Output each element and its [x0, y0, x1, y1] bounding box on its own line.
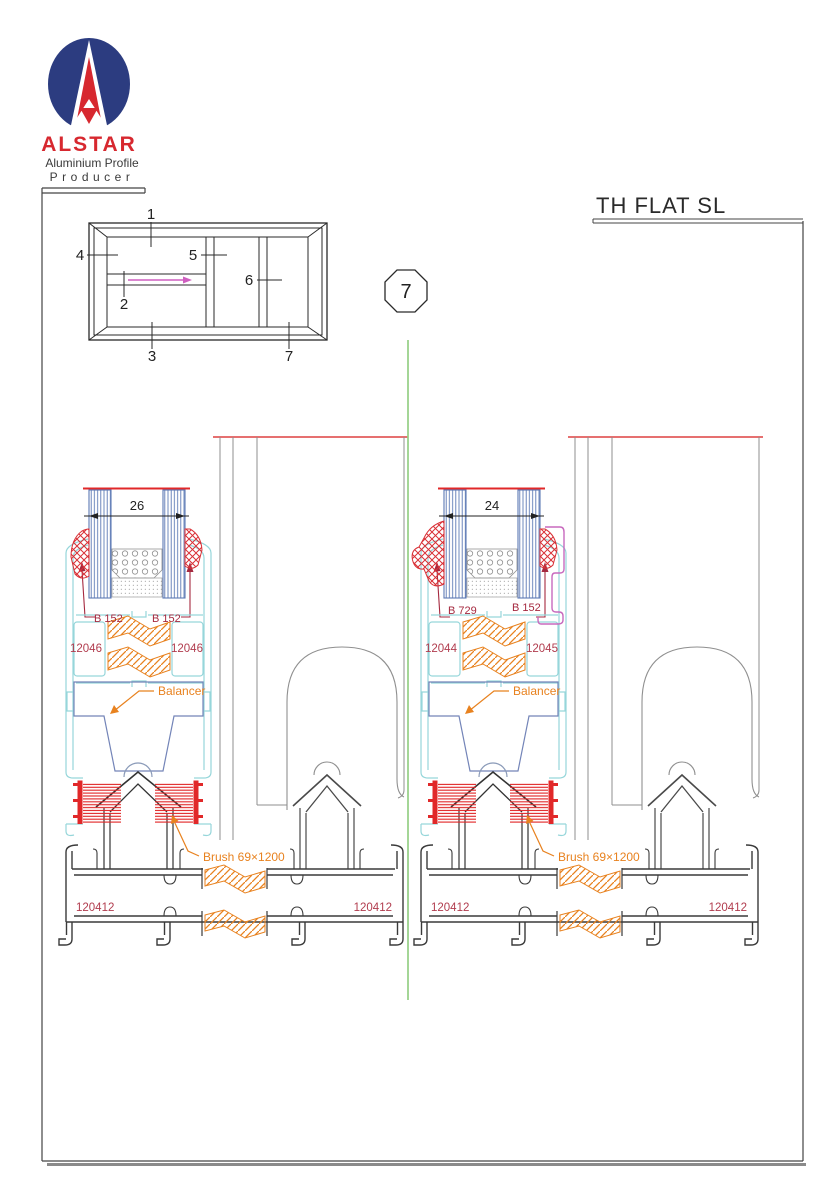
frame-profile-label-right: 120412 — [709, 902, 747, 914]
brand-name: ALSTAR — [41, 133, 137, 156]
window-schematic: 1 4 5 2 6 3 7 — [76, 206, 327, 365]
detail-section-right: 24 B 729 B 152 12044 12045 Balancer Brus… — [412, 437, 763, 945]
frame-profile-label-left: 120412 — [76, 902, 114, 914]
page-border — [42, 188, 806, 1165]
gasket-left — [412, 521, 444, 586]
brush-label: Brush 69×1200 — [203, 850, 285, 864]
glass-dimension-label: 24 — [485, 498, 499, 513]
drawing-sheet: ALSTAR Aluminium Profile Producer TH FLA… — [0, 0, 829, 1200]
gasket-right — [540, 529, 557, 568]
chamber-label-right: 12046 — [171, 643, 203, 655]
chamber-label-left: 12044 — [425, 643, 458, 655]
title-block: TH FLAT SL — [593, 193, 803, 223]
chamber-label-right: 12045 — [526, 643, 558, 655]
frame-profile-label-right: 120412 — [354, 902, 392, 914]
callout-label-1: 1 — [147, 206, 155, 223]
glass-dimension-label: 26 — [130, 498, 144, 513]
sheet-title: TH FLAT SL — [596, 193, 726, 218]
section-marker: 7 — [385, 270, 427, 312]
company-logo: ALSTAR Aluminium Profile Producer — [41, 38, 139, 184]
gasket-label-right: B 152 — [152, 613, 181, 625]
gasket-label-right: B 152 — [512, 602, 541, 614]
chamber-label-left: 12046 — [70, 643, 102, 655]
detail-section-left: 26 B 152 B 152 12046 12046 Balancer Brus… — [59, 437, 408, 945]
gasket-right — [185, 529, 202, 568]
brand-subtitle-2: Producer — [50, 170, 135, 184]
balancer-label: Balancer — [158, 684, 205, 698]
brush-label: Brush 69×1200 — [558, 850, 640, 864]
balancer-label: Balancer — [513, 684, 560, 698]
schematic-frame — [89, 223, 327, 340]
callout-label-7: 7 — [285, 348, 293, 365]
callout-label-4: 4 — [76, 247, 84, 264]
callout-label-5: 5 — [189, 247, 197, 264]
gasket-label-left: B 729 — [448, 605, 477, 617]
title-underline — [593, 219, 803, 223]
frame-profile-label-left: 120412 — [431, 902, 469, 914]
callout-label-2: 2 — [120, 296, 128, 313]
gasket-label-left: B 152 — [94, 613, 123, 625]
callout-label-6: 6 — [245, 272, 253, 289]
opening-direction-arrow — [128, 277, 192, 284]
gasket-left — [71, 529, 89, 578]
brand-subtitle-1: Aluminium Profile — [45, 156, 139, 170]
callout-label-3: 3 — [148, 348, 156, 365]
section-number: 7 — [400, 281, 411, 303]
